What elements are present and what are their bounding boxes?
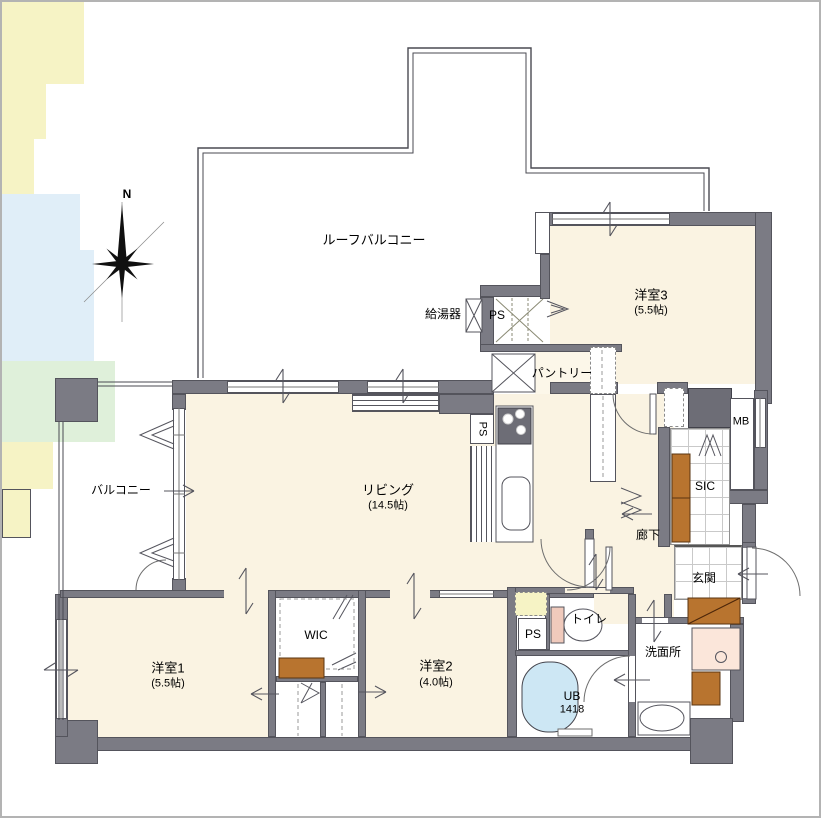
roof-balcony-label: ルーフバルコニー <box>323 234 426 247</box>
toilet-tank <box>551 607 564 643</box>
pantry-label: パントリー <box>532 367 593 379</box>
bedroom3-label: 洋室3 <box>634 289 667 302</box>
kitchen-counter <box>496 406 533 542</box>
stove <box>498 408 531 444</box>
balcony-label: バルコニー <box>91 484 151 496</box>
roof-balcony-railing <box>198 48 709 378</box>
washroom-cabinet <box>692 672 720 705</box>
ps-toilet-label: PS <box>525 628 541 640</box>
hallway-label: 廊下 <box>636 529 660 541</box>
water-heater-label: 給湯器 <box>425 308 461 320</box>
folding-door-glyphs <box>140 301 721 703</box>
direction-arrows <box>44 202 768 700</box>
sic-label: SIC <box>695 480 715 492</box>
bedroom2-size-label: (4.0帖) <box>419 678 453 689</box>
genkan-label: 玄関 <box>692 572 716 584</box>
bath-size-label: 1418 <box>560 705 584 716</box>
plan-linework <box>2 2 821 818</box>
bedroom1-size-label: (5.5帖) <box>151 679 185 690</box>
living-size-label: (14.5帖) <box>368 501 408 512</box>
kitchen-sink <box>502 477 530 530</box>
living-label: リビング <box>362 484 414 497</box>
washer-pan <box>640 705 684 731</box>
ps-kitchen-label: PS <box>477 422 488 437</box>
bath-label: UB <box>564 690 581 702</box>
sic-shelf-upper <box>672 454 690 498</box>
bedroom2-label: 洋室2 <box>419 660 452 673</box>
compass-label: N <box>123 188 132 200</box>
bedroom1-label: 洋室1 <box>151 662 184 675</box>
wic-label: WIC <box>304 629 327 641</box>
bedroom3-size-label: (5.5帖) <box>634 306 668 317</box>
ps-top-label: PS <box>489 309 505 321</box>
floor-plan: N ルーフバルコニー 給湯器 PS 洋室3 (5.5帖) パントリー MB リビ… <box>0 0 821 818</box>
vanity-counter <box>692 628 740 670</box>
wic-dresser <box>279 658 324 678</box>
sic-shelf-lower <box>672 498 690 542</box>
bathroom-fixtures <box>522 607 740 736</box>
toilet-label: トイレ <box>571 613 607 625</box>
washroom-label: 洗面所 <box>645 646 681 658</box>
compass-icon <box>84 202 164 322</box>
mb-label: MB <box>733 417 750 428</box>
